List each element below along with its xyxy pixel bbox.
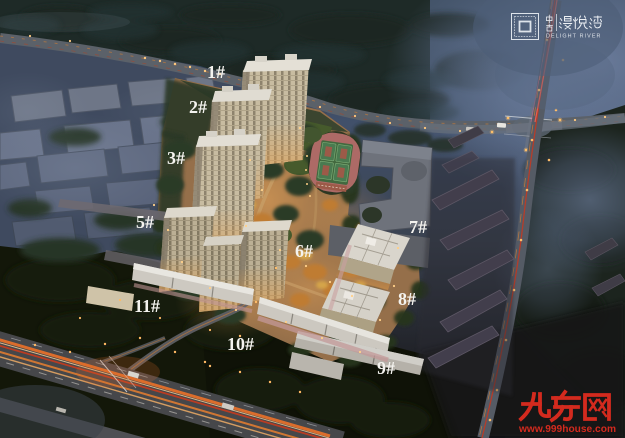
svg-text:8#: 8# xyxy=(398,289,416,309)
svg-text:1#: 1# xyxy=(207,62,225,82)
svg-text:7#: 7# xyxy=(409,217,427,237)
svg-text:2#: 2# xyxy=(189,97,207,117)
svg-text:3#: 3# xyxy=(167,148,185,168)
svg-text:11#: 11# xyxy=(134,296,160,316)
svg-text:6#: 6# xyxy=(295,241,313,261)
svg-text:www.999house.com: www.999house.com xyxy=(518,424,616,435)
svg-text:DELIGHT RIVER: DELIGHT RIVER xyxy=(546,34,602,40)
svg-text:9#: 9# xyxy=(377,358,395,378)
svg-text:5#: 5# xyxy=(136,212,154,232)
svg-text:10#: 10# xyxy=(227,334,254,354)
